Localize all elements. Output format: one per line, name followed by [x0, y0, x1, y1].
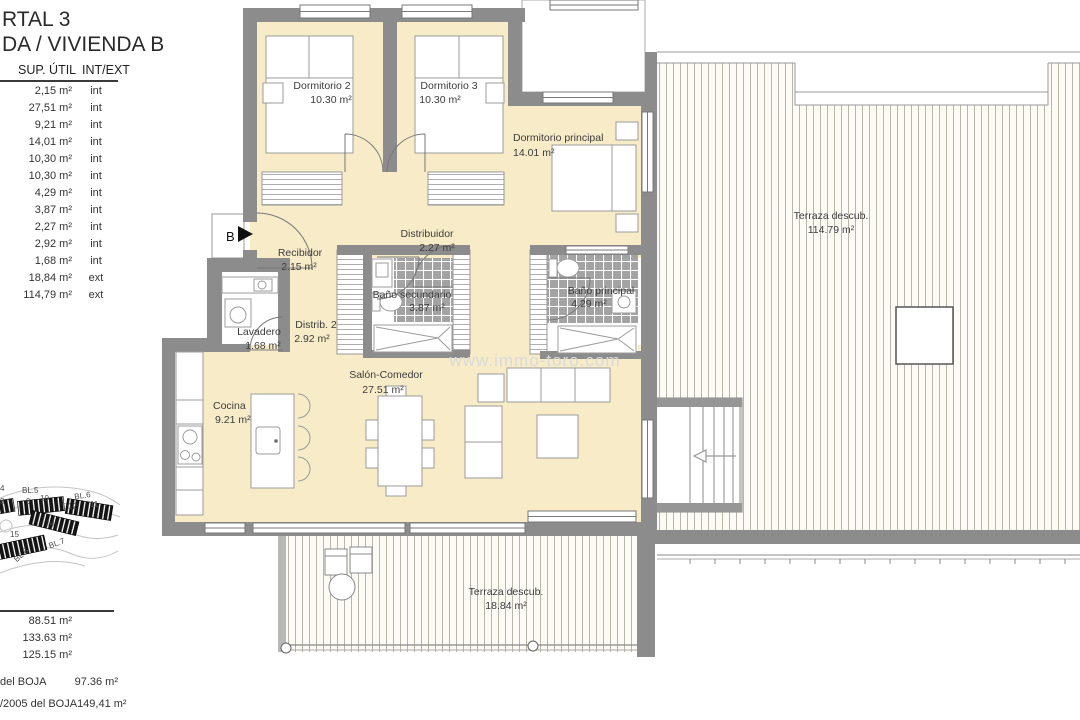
room-area: 18.84 m² [485, 600, 527, 612]
wardrobe-icon [262, 172, 342, 205]
room-area: 10.30 m² [310, 94, 352, 106]
table-row: 4,29 m²int [0, 187, 132, 199]
room-area: 1.68 m² [245, 340, 281, 352]
table-row: 3,87 m²int [0, 204, 132, 216]
svg-text:11: 11 [90, 500, 99, 509]
page-title-line1: RTAL 3 [2, 8, 70, 32]
room-label: Dormitorio 3 [420, 80, 477, 92]
room-label: Terraza descub. [469, 586, 544, 598]
table-row: 27,51 m²int [0, 102, 132, 114]
room-area: 3.87 m² [409, 302, 445, 314]
railing-post [528, 641, 538, 651]
room-label: Dormitorio 2 [293, 80, 350, 92]
entrance-label: B [226, 229, 235, 244]
room-label: Terraza descub. [794, 210, 869, 222]
boja-row: del BOJA97.36 m² [0, 676, 118, 688]
table-row: 14,01 m²int [0, 136, 132, 148]
sink-icon [372, 259, 392, 287]
wardrobe-icon [428, 172, 504, 205]
table-row: 9,21 m²int [0, 119, 132, 131]
page-title-line2: DA / VIVIENDA B [2, 33, 164, 57]
table-row: 10,30 m²int [0, 170, 132, 182]
closet-icon [337, 250, 367, 354]
floor-plan-page: B Dormitorio 2 10.30 m² Dormitorio 3 10.… [0, 0, 1080, 720]
room-area: 9.21 m² [215, 414, 251, 426]
totals-rule [0, 610, 114, 612]
room-area: 14.01 m² [513, 147, 555, 159]
svg-text:4: 4 [0, 484, 5, 493]
boja-row: /2005 del BOJA149,41 m² [0, 698, 118, 710]
table-header-rule [0, 80, 118, 82]
room-label: Cocina [213, 400, 246, 412]
site-minimap: 4 BL.5 8 9 10 BL.6 12 11 14 15 BL.7 BL.8 [0, 484, 120, 573]
room-area: 2.27 m² [419, 242, 455, 254]
svg-text:10: 10 [40, 494, 49, 503]
watermark: www.immo-toro.com [449, 351, 621, 370]
neighbor-unit [522, 0, 645, 92]
room-label: Distribuidor [400, 228, 454, 240]
closet-icon [530, 250, 547, 354]
closet-icon [453, 250, 470, 354]
table-row: 10,30 m²int [0, 153, 132, 165]
total-value: 125.15 m² [0, 649, 72, 661]
table-row: 114,79 m²ext [0, 289, 132, 301]
svg-text:9: 9 [26, 497, 31, 506]
room-label: Recibidor [278, 247, 323, 259]
room-area: 114.79 m² [808, 224, 855, 236]
table-row: 2,15 m²int [0, 85, 132, 97]
table-row: 2,27 m²int [0, 221, 132, 233]
room-area: 2.92 m² [294, 333, 330, 345]
room-label: Lavadero [237, 326, 281, 338]
bathtub-icon [558, 326, 636, 353]
room-label: Salón-Comedor [349, 369, 423, 381]
toilet-icon [549, 259, 579, 277]
table-row: 1,68 m²int [0, 255, 132, 267]
svg-text:BL.5: BL.5 [22, 486, 39, 495]
svg-text:15: 15 [10, 530, 19, 539]
room-area: 10.30 m² [419, 94, 461, 106]
svg-text:8: 8 [0, 497, 5, 506]
railing-ticks [690, 559, 1065, 564]
room-label: Baño secundario [373, 289, 452, 301]
table-row: 18,84 m²ext [0, 272, 132, 284]
floor-plan: B Dormitorio 2 10.30 m² Dormitorio 3 10.… [0, 0, 1080, 720]
total-value: 88.51 m² [0, 615, 72, 627]
room-label: Dormitorio principal [513, 132, 603, 144]
total-value: 133.63 m² [0, 632, 72, 644]
table-row: 2,92 m²int [0, 238, 132, 250]
terrace-bottom [278, 525, 655, 657]
table-header-sup: SUP. ÚTIL [18, 63, 76, 77]
room-area: 27.51 m² [362, 384, 404, 396]
room-area: 4.29 m² [571, 298, 607, 310]
table-header-intext: INT/EXT [82, 63, 130, 77]
room-label: Distrib. 2 [295, 319, 337, 331]
room-label: Baño principal [568, 285, 635, 297]
kitchen-counter-icon [176, 352, 203, 515]
bathtub-icon [374, 325, 452, 352]
svg-text:12: 12 [68, 502, 77, 511]
svg-text:BL.7: BL.7 [47, 536, 66, 550]
railing-post [281, 643, 291, 653]
room-area: 2.15 m² [281, 261, 317, 273]
terrace-skylight [896, 307, 953, 364]
